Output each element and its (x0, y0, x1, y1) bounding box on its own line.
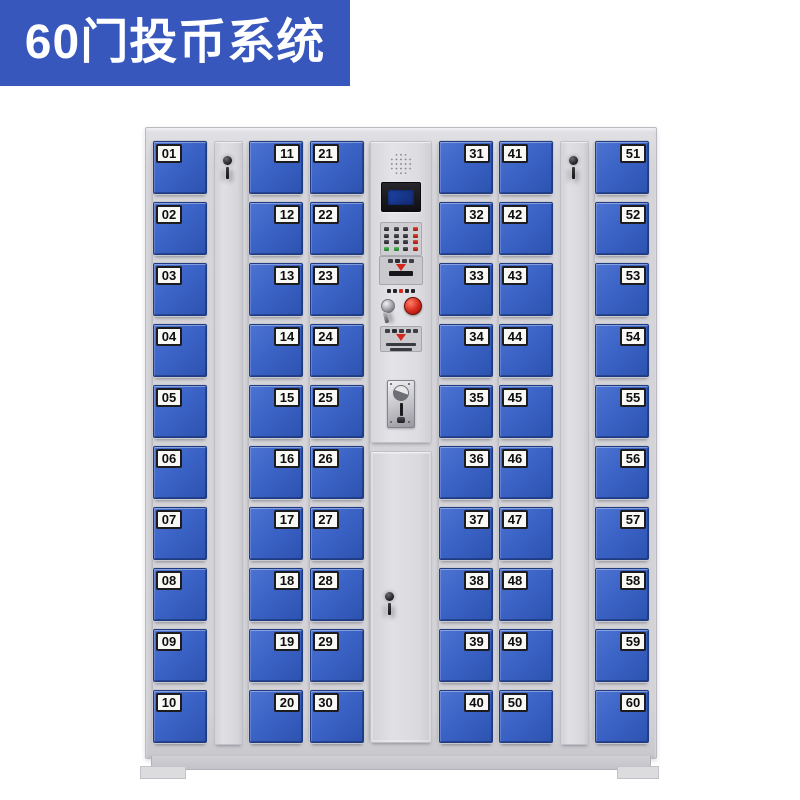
card-reader-panel (379, 256, 423, 285)
door-number-label: 59 (620, 632, 646, 651)
door-number-label: 51 (620, 144, 646, 163)
product-photo: 60门投币系统 01020304050607080910 11121314151… (0, 0, 800, 800)
door-number-label: 53 (620, 266, 646, 285)
locker-door-01: 01 (153, 141, 207, 194)
locker-door-37: 37 (439, 507, 493, 560)
door-number-label: 28 (313, 571, 339, 590)
key-lock-icon (569, 156, 579, 166)
panel-caption (386, 343, 416, 346)
locker-door-column: 11121314151617181920 (249, 141, 303, 743)
locker-door-column: 01020304050607080910 (153, 141, 207, 743)
door-number-label: 03 (156, 266, 182, 285)
coin-return-button (397, 417, 405, 423)
locker-door-14: 14 (249, 324, 303, 377)
locker-door-column: 41424344454647484950 (499, 141, 553, 743)
locker-door-30: 30 (310, 690, 364, 743)
locker-door-51: 51 (595, 141, 649, 194)
door-number-label: 30 (313, 693, 339, 712)
control-button-cluster (371, 288, 431, 324)
locker-columns: 01020304050607080910 1112131415161718192… (153, 141, 649, 743)
door-number-label: 22 (313, 205, 339, 224)
ticket-slot-panel (380, 326, 422, 352)
door-number-label: 56 (620, 449, 646, 468)
locker-door-49: 49 (499, 629, 553, 682)
locker-door-35: 35 (439, 385, 493, 438)
door-number-label: 12 (274, 205, 300, 224)
key-lock-icon (223, 156, 233, 166)
coin-slot-icon (400, 403, 403, 416)
control-panel-column (370, 141, 432, 743)
locker-door-50: 50 (499, 690, 553, 743)
locker-door-60: 60 (595, 690, 649, 743)
panel-icons (380, 259, 422, 263)
door-number-label: 06 (156, 449, 182, 468)
door-number-label: 20 (274, 693, 300, 712)
locker-door-58: 58 (595, 568, 649, 621)
door-number-label: 21 (313, 144, 339, 163)
locker-door-57: 57 (595, 507, 649, 560)
door-number-label: 13 (274, 266, 300, 285)
locker-door-52: 52 (595, 202, 649, 255)
locker-door-06: 06 (153, 446, 207, 499)
red-arrow-icon (396, 334, 406, 341)
master-lock-column (214, 141, 243, 745)
door-number-label: 32 (464, 205, 490, 224)
locker-door-42: 42 (499, 202, 553, 255)
panel-icons (381, 329, 421, 333)
door-number-label: 49 (502, 632, 528, 651)
locker-door-10: 10 (153, 690, 207, 743)
door-number-label: 07 (156, 510, 182, 529)
coin-dial-icon (393, 385, 409, 401)
lcd-screen (388, 190, 414, 205)
door-number-label: 01 (156, 144, 182, 163)
card-slot (389, 271, 413, 276)
door-number-label: 04 (156, 327, 182, 346)
door-number-label: 25 (313, 388, 339, 407)
locker-door-04: 04 (153, 324, 207, 377)
locker-door-48: 48 (499, 568, 553, 621)
door-number-label: 31 (464, 144, 490, 163)
locker-door-11: 11 (249, 141, 303, 194)
door-number-label: 33 (464, 266, 490, 285)
cabinet-foot-right (617, 766, 659, 779)
door-number-label: 60 (620, 693, 646, 712)
door-number-label: 24 (313, 327, 339, 346)
door-number-label: 05 (156, 388, 182, 407)
locker-door-46: 46 (499, 446, 553, 499)
door-number-label: 23 (313, 266, 339, 285)
door-number-label: 27 (313, 510, 339, 529)
locker-door-41: 41 (499, 141, 553, 194)
locker-door-18: 18 (249, 568, 303, 621)
door-number-label: 38 (464, 571, 490, 590)
door-number-label: 02 (156, 205, 182, 224)
door-number-label: 14 (274, 327, 300, 346)
door-number-label: 19 (274, 632, 300, 651)
door-number-label: 15 (274, 388, 300, 407)
door-number-label: 29 (313, 632, 339, 651)
door-number-label: 26 (313, 449, 339, 468)
banner-title: 60门投币系统 (25, 19, 325, 67)
locker-door-column: 21222324252627282930 (310, 141, 364, 743)
door-number-label: 44 (502, 327, 528, 346)
locker-door-32: 32 (439, 202, 493, 255)
door-number-label: 18 (274, 571, 300, 590)
cabinet-foot-left (140, 766, 186, 779)
key-lock-icon (381, 299, 395, 313)
door-number-label: 54 (620, 327, 646, 346)
locker-door-17: 17 (249, 507, 303, 560)
locker-door-12: 12 (249, 202, 303, 255)
locker-door-21: 21 (310, 141, 364, 194)
locker-door-38: 38 (439, 568, 493, 621)
locker-door-44: 44 (499, 324, 553, 377)
locker-door-40: 40 (439, 690, 493, 743)
locker-cabinet: 01020304050607080910 1112131415161718192… (145, 127, 657, 759)
door-number-label: 50 (502, 693, 528, 712)
locker-door-55: 55 (595, 385, 649, 438)
locker-door-27: 27 (310, 507, 364, 560)
locker-door-43: 43 (499, 263, 553, 316)
red-button (404, 297, 422, 315)
locker-door-39: 39 (439, 629, 493, 682)
panel-caption (390, 348, 412, 351)
locker-door-15: 15 (249, 385, 303, 438)
locker-door-36: 36 (439, 446, 493, 499)
banner: 60门投币系统 (0, 0, 350, 86)
coin-acceptor (387, 380, 415, 428)
control-panel (370, 141, 432, 443)
locker-door-45: 45 (499, 385, 553, 438)
locker-door-26: 26 (310, 446, 364, 499)
locker-door-34: 34 (439, 324, 493, 377)
locker-door-33: 33 (439, 263, 493, 316)
door-number-label: 10 (156, 693, 182, 712)
door-number-label: 40 (464, 693, 490, 712)
locker-door-05: 05 (153, 385, 207, 438)
door-number-label: 52 (620, 205, 646, 224)
door-number-label: 16 (274, 449, 300, 468)
door-number-label: 46 (502, 449, 528, 468)
locker-door-20: 20 (249, 690, 303, 743)
door-number-label: 08 (156, 571, 182, 590)
door-number-label: 11 (274, 144, 300, 163)
door-number-label: 42 (502, 205, 528, 224)
door-number-label: 36 (464, 449, 490, 468)
locker-door-13: 13 (249, 263, 303, 316)
locker-door-31: 31 (439, 141, 493, 194)
locker-door-09: 09 (153, 629, 207, 682)
locker-door-23: 23 (310, 263, 364, 316)
door-number-label: 41 (502, 144, 528, 163)
service-door (370, 451, 432, 743)
cabinet-base (151, 756, 651, 770)
locker-door-22: 22 (310, 202, 364, 255)
locker-door-25: 25 (310, 385, 364, 438)
door-number-label: 58 (620, 571, 646, 590)
door-number-label: 37 (464, 510, 490, 529)
door-number-label: 35 (464, 388, 490, 407)
door-number-label: 55 (620, 388, 646, 407)
locker-door-column: 31323334353637383940 (439, 141, 493, 743)
locker-door-29: 29 (310, 629, 364, 682)
speaker-grille-icon (390, 153, 412, 175)
locker-door-16: 16 (249, 446, 303, 499)
locker-door-19: 19 (249, 629, 303, 682)
locker-door-28: 28 (310, 568, 364, 621)
mini-buttons (371, 288, 431, 293)
locker-door-59: 59 (595, 629, 649, 682)
door-number-label: 57 (620, 510, 646, 529)
locker-door-53: 53 (595, 263, 649, 316)
door-number-label: 34 (464, 327, 490, 346)
door-number-label: 09 (156, 632, 182, 651)
master-lock-column (560, 141, 589, 745)
locker-door-03: 03 (153, 263, 207, 316)
keypad (380, 222, 422, 256)
door-number-label: 47 (502, 510, 528, 529)
red-arrow-icon (396, 264, 406, 271)
lcd-display (381, 182, 421, 212)
door-number-label: 43 (502, 266, 528, 285)
door-number-label: 39 (464, 632, 490, 651)
door-number-label: 17 (274, 510, 300, 529)
door-number-label: 45 (502, 388, 528, 407)
locker-door-08: 08 (153, 568, 207, 621)
locker-door-column: 51525354555657585960 (595, 141, 649, 743)
locker-door-02: 02 (153, 202, 207, 255)
key-lock-icon (385, 592, 395, 602)
locker-door-47: 47 (499, 507, 553, 560)
locker-door-07: 07 (153, 507, 207, 560)
door-number-label: 48 (502, 571, 528, 590)
locker-door-56: 56 (595, 446, 649, 499)
locker-door-54: 54 (595, 324, 649, 377)
locker-door-24: 24 (310, 324, 364, 377)
